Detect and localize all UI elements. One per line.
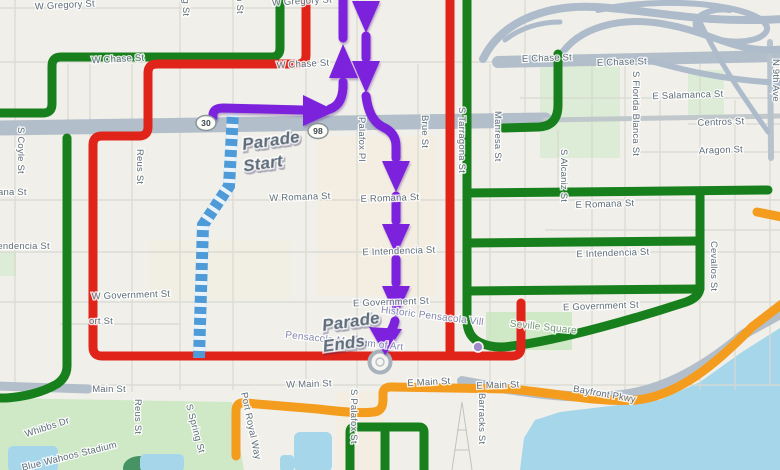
street-label: W Intendencia St (0, 241, 50, 252)
pond (524, 452, 612, 470)
street-label: S Spring St (180, 0, 191, 16)
green-e-romana (467, 190, 768, 193)
street-label: Barracks St (476, 393, 487, 444)
street-label: Aragon St (699, 144, 744, 157)
street-label: E Romana St (360, 192, 419, 205)
highway-shield-number: 98 (313, 126, 323, 136)
pond (294, 432, 332, 470)
street-label: S Florida Blanca St (630, 71, 641, 156)
street-label: ort St (89, 316, 113, 327)
pond (140, 454, 184, 470)
street-label: N 9th Ave (770, 59, 780, 102)
orange-east-stub (757, 212, 780, 217)
street-label: Palafox Pl (356, 117, 367, 162)
street-label: Manresa St (492, 111, 503, 162)
street-label: W Romana St (269, 191, 331, 204)
street-label: E Main St (407, 376, 451, 389)
green-e-intendencia (467, 241, 700, 243)
park-block (540, 66, 620, 158)
street-label: E Chase St (597, 56, 648, 69)
street-label: S Baylen St (234, 0, 245, 14)
highway-shield-number: 30 (201, 118, 211, 128)
street-label: W Romana St (0, 187, 27, 198)
street-label: Reus St (132, 399, 143, 434)
street-label: S Coyle St (15, 127, 26, 174)
poi-marker-icon (473, 342, 483, 352)
street-label: S Tarragona St (456, 107, 467, 173)
street-label: Reus St (134, 149, 145, 184)
street-label: Main St (92, 384, 126, 395)
street-label: Brue St (419, 115, 430, 148)
street-label: E Main St (476, 379, 520, 391)
downtown-block (150, 240, 290, 300)
pond (280, 455, 294, 470)
street-label: Centros St (697, 116, 744, 129)
street-label: Cevallos St (708, 241, 719, 291)
roundabout (370, 352, 391, 373)
roundabout-ring (370, 352, 391, 373)
green-e-government (467, 289, 700, 291)
map-canvas: 3098 W Gregory StW Gregory StW Chase StW… (0, 0, 780, 470)
street-label: S Palafox St (348, 389, 359, 444)
street-label: E Chase St (522, 52, 573, 65)
street-label: W Main St (286, 378, 332, 391)
street-label: S Alcaniz St (558, 149, 569, 202)
street-label: E Romana St (575, 198, 634, 211)
parade-route-map: 3098 W Gregory StW Gregory StW Chase StW… (0, 0, 780, 470)
park-block (0, 252, 16, 276)
